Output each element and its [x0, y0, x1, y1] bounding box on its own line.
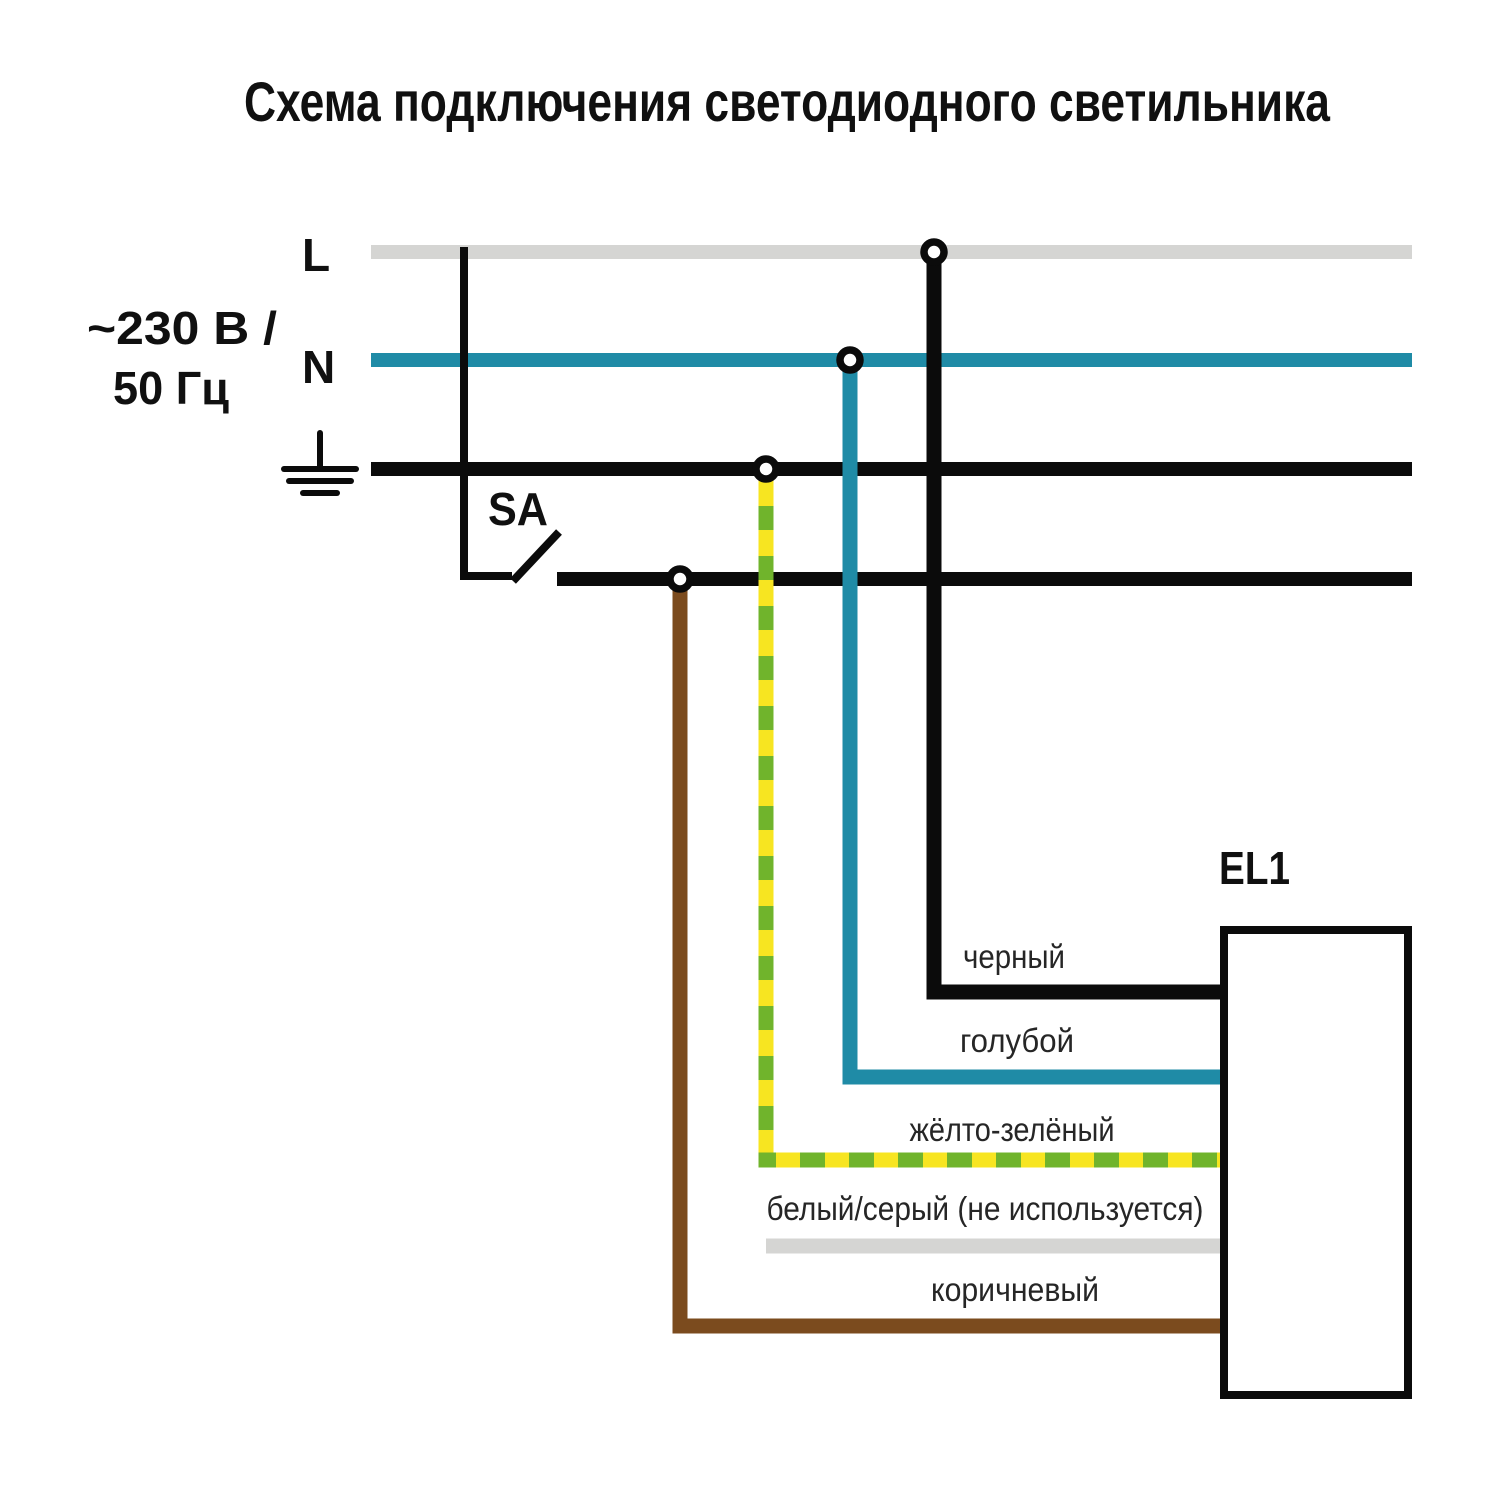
svg-text:L: L — [302, 229, 330, 281]
svg-text:голубой: голубой — [960, 1022, 1074, 1059]
svg-text:жёлто-зелёный: жёлто-зелёный — [910, 1111, 1115, 1148]
svg-text:N: N — [302, 341, 335, 393]
svg-text:SA: SA — [488, 483, 548, 535]
svg-text:коричневый: коричневый — [931, 1271, 1099, 1308]
svg-text:EL1: EL1 — [1219, 842, 1290, 894]
svg-text:Схема подключения светодиодног: Схема подключения светодиодного светильн… — [244, 70, 1331, 133]
svg-text:белый/серый (не используется): белый/серый (не используется) — [767, 1190, 1204, 1227]
svg-text:черный: черный — [963, 938, 1065, 975]
svg-text:50 Гц: 50 Гц — [113, 362, 229, 414]
svg-text:~230 В /: ~230 В / — [87, 302, 277, 354]
